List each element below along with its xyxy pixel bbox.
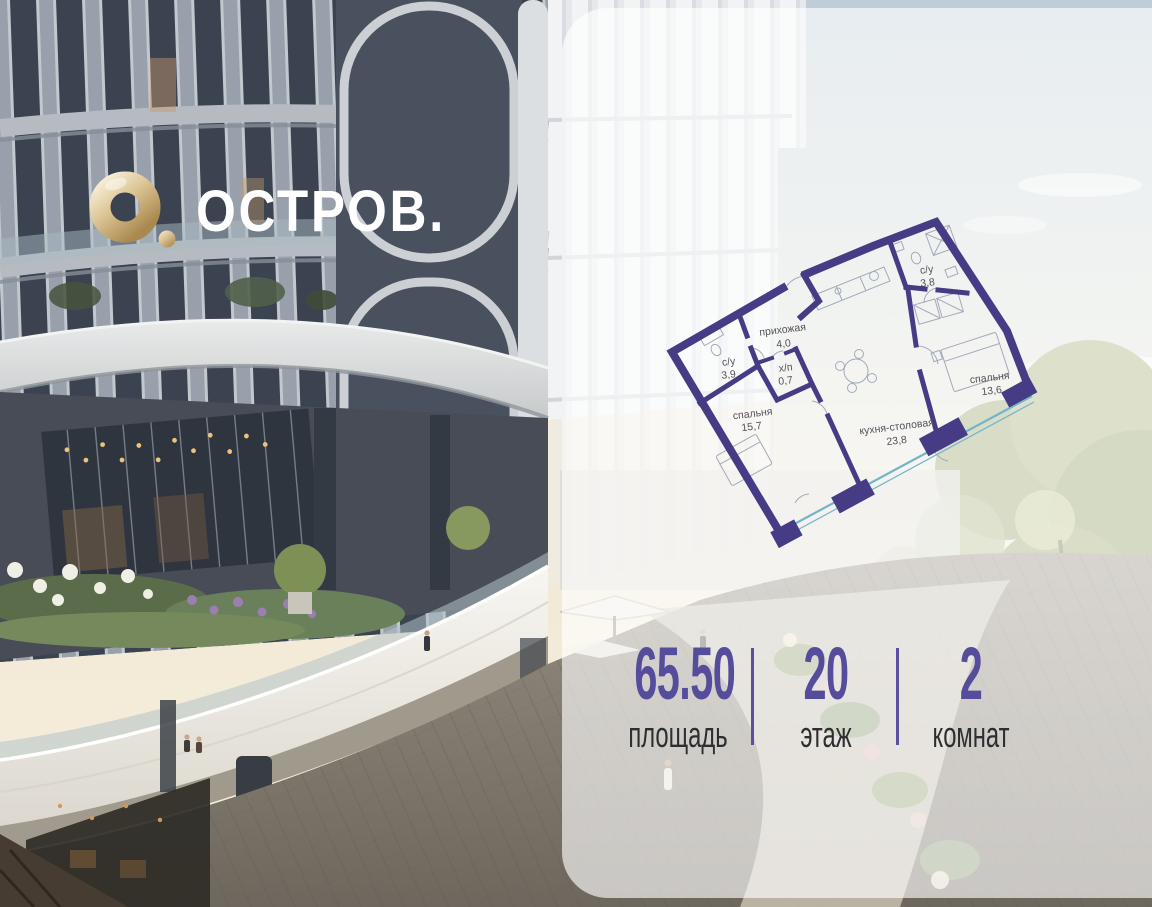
brand-logo: ОСТРОВ.: [0, 0, 1152, 907]
stat-rooms: 2 комнат: [901, 640, 1041, 753]
stat-area: 65.50 площадь: [600, 640, 756, 753]
logo-mark: [100, 175, 176, 247]
stat-area-label: площадь: [627, 717, 730, 753]
stat-floor-label: этаж: [780, 717, 872, 753]
stats-divider: [751, 648, 754, 745]
stats-divider: [896, 648, 899, 745]
stat-floor-value: 20: [787, 640, 865, 708]
stats-row: 65.50 площадь 20 этаж 2 комнат: [592, 640, 1052, 760]
stat-rooms-label: комнат: [925, 717, 1017, 753]
stat-rooms-value: 2: [932, 640, 1010, 708]
stat-floor: 20 этаж: [756, 640, 896, 753]
stat-area-value: 65.50: [634, 640, 721, 708]
logo-wordmark: ОСТРОВ.: [196, 179, 446, 244]
logo-dot: [159, 231, 176, 248]
promo-card: прихожая 4,0 с/у 3,9 х/п 0,7 спальня 15,…: [0, 0, 1152, 907]
